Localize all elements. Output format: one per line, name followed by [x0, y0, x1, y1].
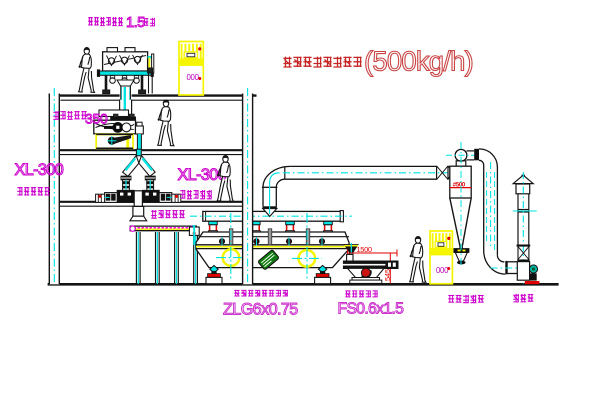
svg-text:350: 350 [85, 111, 108, 127]
svg-text:(500kg/h): (500kg/h) [364, 46, 473, 77]
svg-text:XL-300: XL-300 [15, 161, 64, 179]
svg-text:#500: #500 [453, 183, 466, 189]
svg-text:ZLG6x0.75: ZLG6x0.75 [223, 301, 298, 319]
svg-text:1.5: 1.5 [126, 15, 145, 31]
svg-text:000: 000 [436, 266, 449, 275]
svg-text:1500: 1500 [357, 245, 372, 254]
svg-text:545: 545 [383, 269, 392, 281]
svg-text:FS0.6x1.5: FS0.6x1.5 [338, 301, 405, 318]
svg-text:000: 000 [187, 73, 200, 82]
